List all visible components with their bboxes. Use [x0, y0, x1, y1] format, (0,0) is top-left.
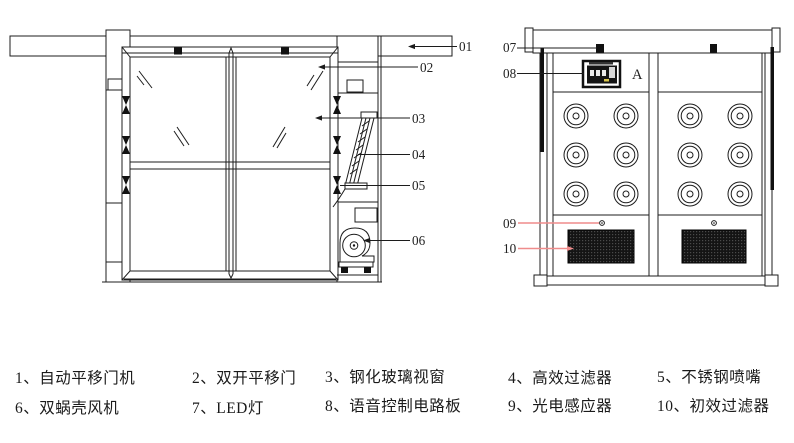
- legend-item-9: 9、光电感应器: [508, 394, 612, 416]
- voice-control-board: [583, 61, 620, 87]
- drawing-svg: 01 02 03 04 05 06: [0, 0, 794, 360]
- legend-item-2: 2、双开平移门: [192, 366, 296, 388]
- callout-05-label: 05: [412, 178, 426, 193]
- callout-07-label: 07: [503, 40, 517, 55]
- callout-09-label: 09: [503, 216, 517, 231]
- legend-item-1: 1、自动平移门机: [15, 366, 135, 388]
- legend-item-3: 3、钢化玻璃视窗: [325, 365, 445, 387]
- callout-04-label: 04: [412, 147, 426, 162]
- legend-item-6: 6、双蜗壳风机: [15, 396, 119, 418]
- legend-item-5: 5、不锈钢喷嘴: [657, 365, 761, 387]
- callout-03-label: 03: [412, 111, 426, 126]
- sliding-door-frame: [122, 47, 338, 280]
- legend-item-4: 4、高效过滤器: [508, 366, 612, 388]
- callout-02-label: 02: [420, 60, 433, 75]
- door-seal-left: [541, 48, 545, 152]
- door-roller-left: [174, 48, 182, 55]
- door-roller-right: [281, 48, 289, 55]
- callout-01-label: 01: [459, 39, 472, 54]
- callout-06-label: 06: [412, 233, 426, 248]
- bottom-sill: [547, 276, 765, 285]
- foot-left: [534, 275, 547, 286]
- primary-filter-right: [682, 230, 746, 263]
- interior-view: A 07 08: [503, 28, 780, 286]
- legend-item-8: 8、语音控制电路板: [325, 394, 461, 416]
- front-view: 01 02 03 04 05 06: [10, 30, 472, 282]
- callout-08-label: 08: [503, 66, 517, 81]
- primary-filter-left: [568, 230, 634, 263]
- foot-right: [765, 275, 778, 286]
- duct-box: [355, 208, 377, 222]
- detail-marker: A: [632, 67, 643, 83]
- door-seal-right: [771, 47, 775, 190]
- legend-item-7: 7、LED灯: [192, 396, 264, 418]
- air-shower-technical-drawing: 01 02 03 04 05 06: [0, 0, 794, 443]
- top-beam: [533, 30, 772, 53]
- callout-10-label: 10: [503, 241, 517, 256]
- legend-item-10: 10、初效过滤器: [657, 394, 770, 416]
